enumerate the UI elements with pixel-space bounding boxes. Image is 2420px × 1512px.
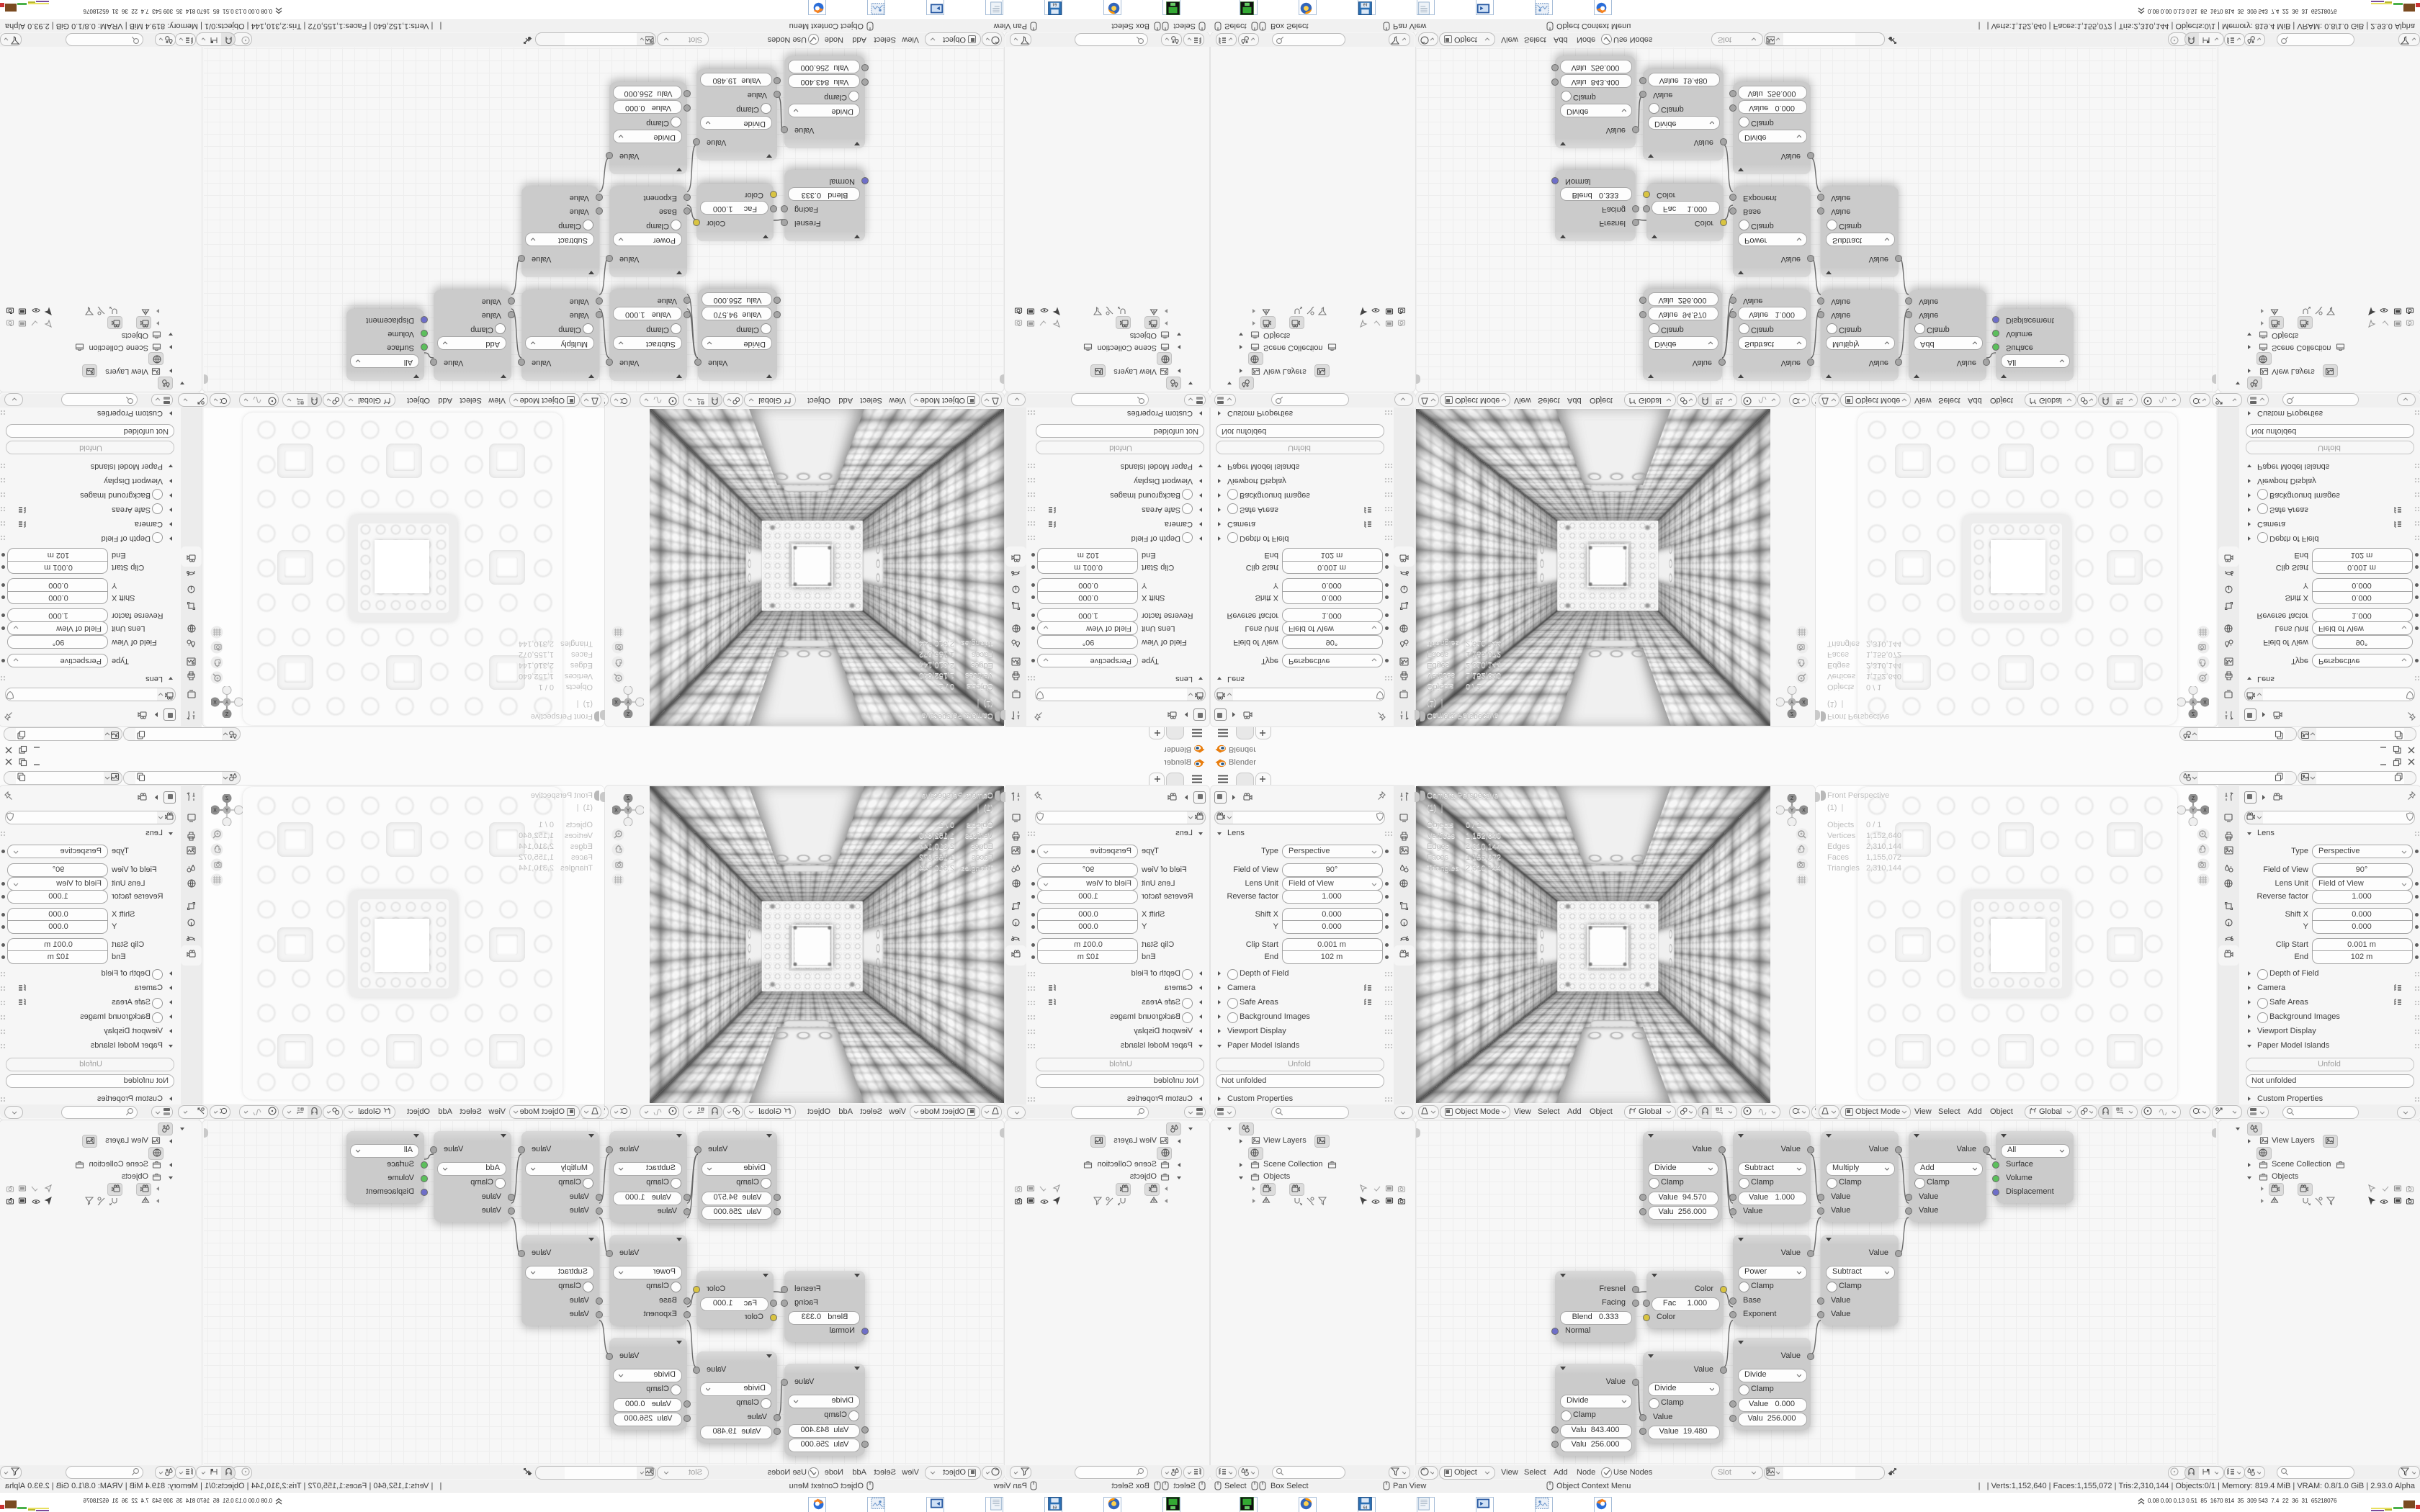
svg-text:64: 64 xyxy=(1363,1506,1368,1510)
svg-text:Y: Y xyxy=(225,809,228,814)
svg-text:Z: Z xyxy=(1791,711,1794,716)
svg-text:64: 64 xyxy=(1363,2,1368,6)
svg-text:Y: Y xyxy=(1791,699,1794,704)
svg-text:64: 64 xyxy=(1053,2,1057,6)
svg-text:X: X xyxy=(213,699,217,704)
svg-text:X: X xyxy=(614,699,618,704)
svg-text:X: X xyxy=(1802,699,1806,704)
svg-text:Z: Z xyxy=(626,796,629,801)
svg-text:X: X xyxy=(2203,809,2207,814)
svg-text:Y: Y xyxy=(626,809,629,814)
svg-text:Y: Y xyxy=(626,699,629,704)
svg-text:64: 64 xyxy=(1053,1506,1057,1510)
svg-text:Y: Y xyxy=(2192,699,2195,704)
svg-text:Y: Y xyxy=(2192,809,2195,814)
svg-text:Z: Z xyxy=(225,711,228,716)
svg-text:Y: Y xyxy=(1791,809,1794,814)
svg-text:X: X xyxy=(614,809,618,814)
svg-text:Z: Z xyxy=(2192,711,2195,716)
svg-text:Z: Z xyxy=(2192,796,2195,801)
svg-text:X: X xyxy=(2203,699,2207,704)
svg-text:Z: Z xyxy=(225,796,228,801)
svg-text:Z: Z xyxy=(1791,796,1794,801)
svg-text:X: X xyxy=(213,809,217,814)
svg-text:Y: Y xyxy=(225,699,228,704)
svg-text:Z: Z xyxy=(626,711,629,716)
svg-text:X: X xyxy=(1802,809,1806,814)
